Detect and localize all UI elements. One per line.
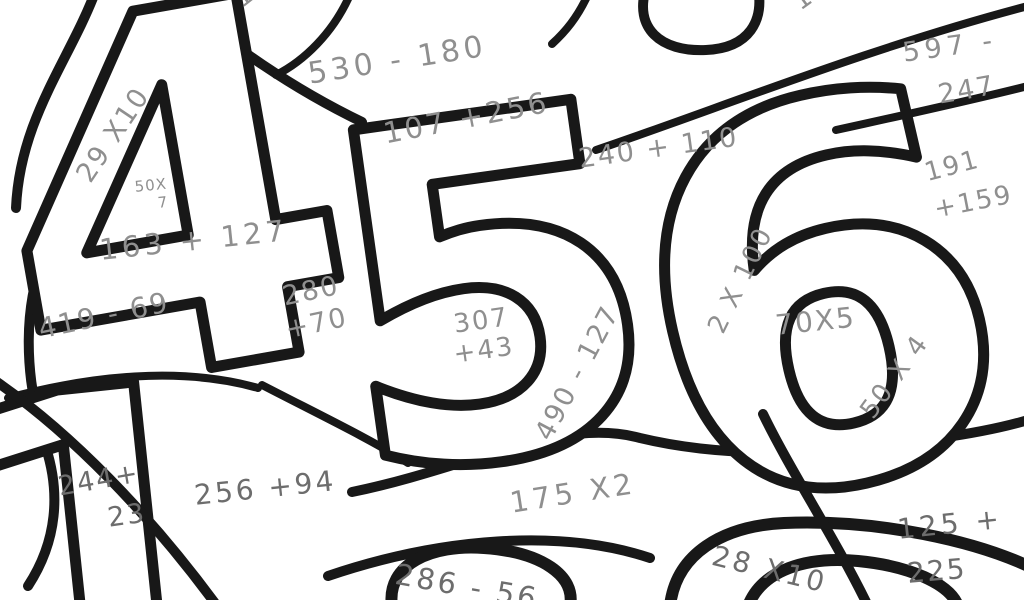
coloring-worksheet: 4 5 6 1 120 530 - 180 107 +256 240 + 110… xyxy=(0,0,1024,600)
expression-50-times-7-line1: 50X xyxy=(134,177,168,195)
expression-23-line2: 23 xyxy=(106,500,148,532)
expression-50-times-7-line2: 7 xyxy=(157,195,169,211)
expression-225-line2: 225 xyxy=(906,555,968,588)
expression-43-line2: +43 xyxy=(452,334,516,368)
expression-70-times-5: 70X5 xyxy=(774,304,857,340)
